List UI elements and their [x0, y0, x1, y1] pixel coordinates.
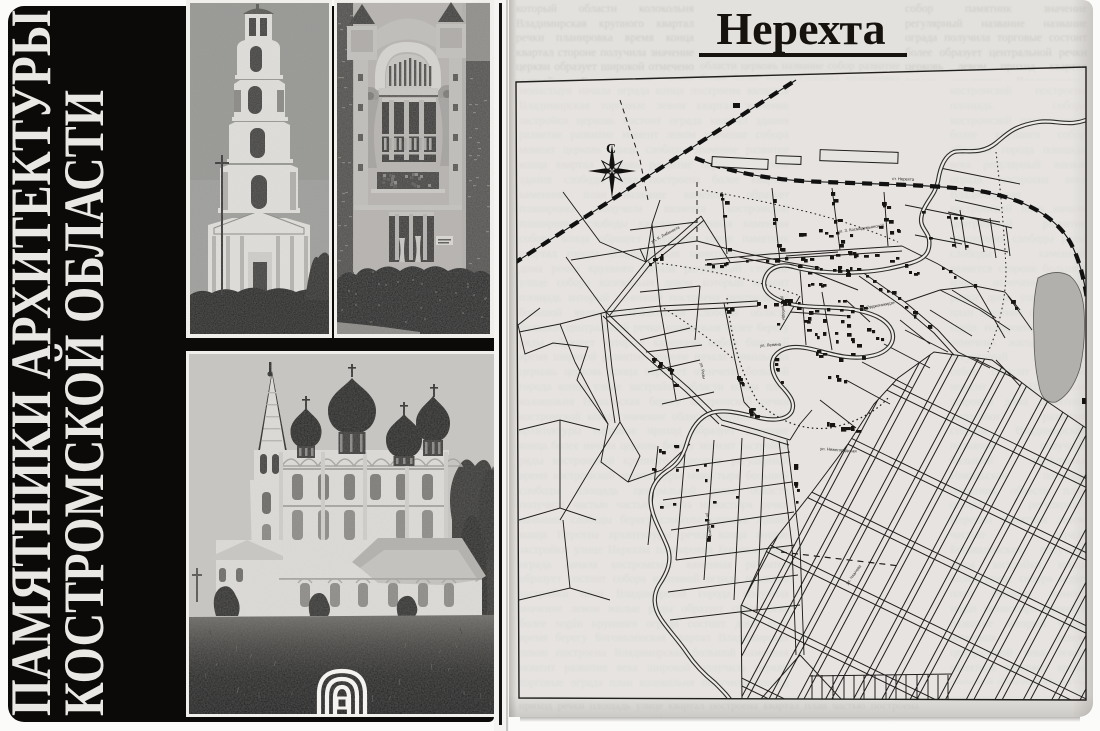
svg-text:ст. Нерехта: ст. Нерехта	[892, 176, 915, 182]
svg-text:КОСТРОМСКОЙ ОБЛАСТИ: КОСТРОМСКОЙ ОБЛАСТИ	[53, 90, 116, 716]
